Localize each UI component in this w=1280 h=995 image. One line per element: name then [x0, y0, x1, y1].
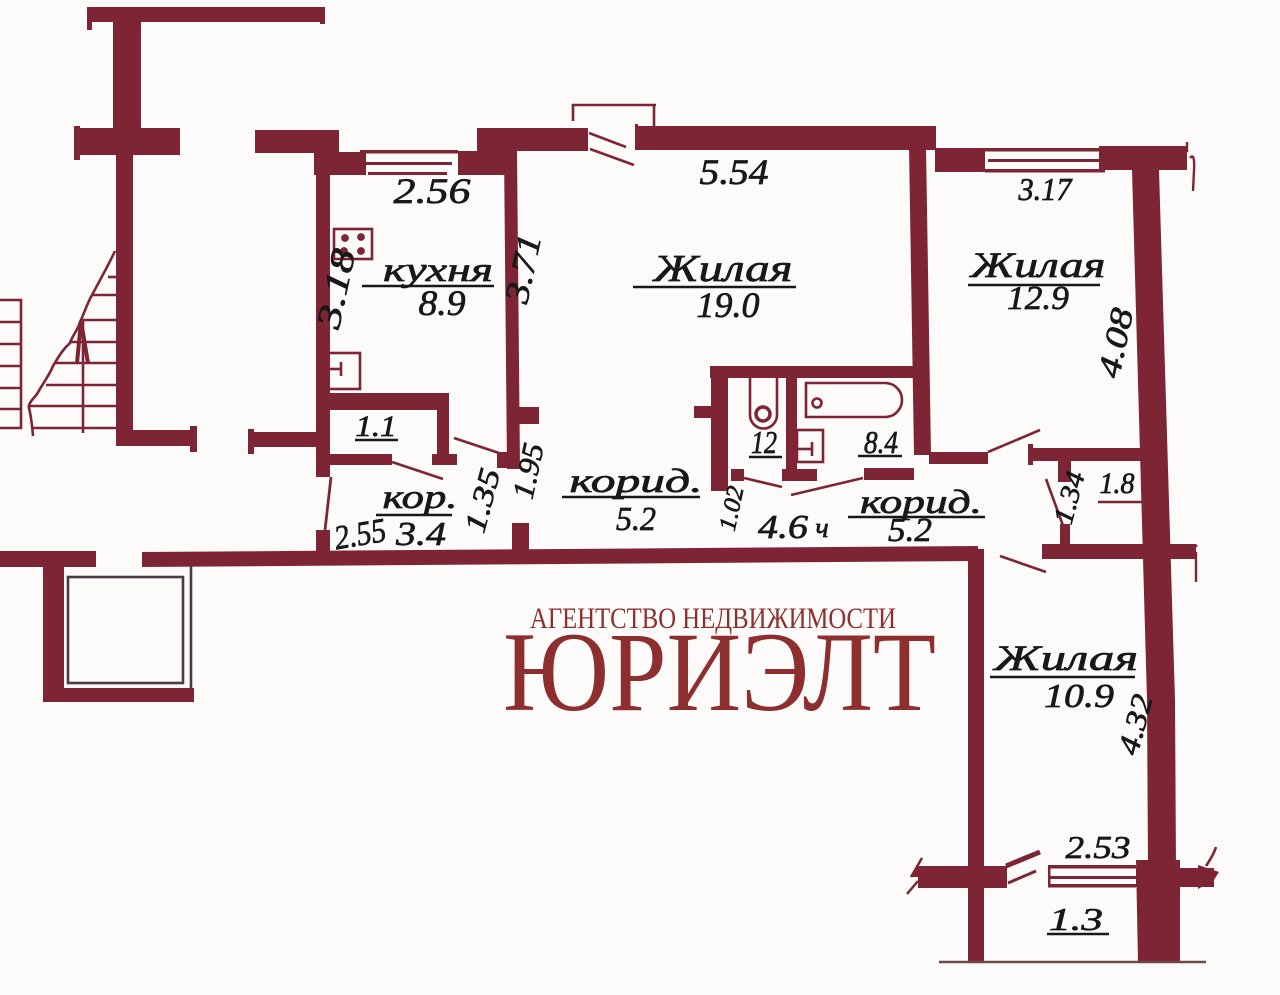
- svg-text:10.9: 10.9: [1044, 678, 1114, 715]
- svg-text:Жилая: Жилая: [652, 248, 792, 290]
- svg-text:2.53: 2.53: [1066, 829, 1131, 865]
- svg-text:ч: ч: [815, 513, 828, 544]
- svg-text:3.17: 3.17: [1018, 171, 1074, 207]
- svg-text:корид.: корид.: [570, 463, 703, 500]
- svg-text:ЮРИЭЛТ: ЮРИЭЛТ: [503, 610, 936, 735]
- svg-text:12.9: 12.9: [1007, 280, 1069, 317]
- svg-text:1.1: 1.1: [356, 410, 397, 443]
- svg-text:5.2: 5.2: [616, 501, 656, 538]
- svg-text:19.0: 19.0: [697, 285, 760, 325]
- svg-text:8.4: 8.4: [864, 424, 898, 460]
- svg-text:12: 12: [751, 424, 777, 460]
- svg-text:3.4: 3.4: [395, 516, 446, 553]
- svg-text:5.2: 5.2: [888, 512, 932, 549]
- svg-text:кор.: кор.: [383, 479, 458, 516]
- svg-text:1.8: 1.8: [1100, 467, 1135, 500]
- svg-text:Жилая: Жилая: [969, 245, 1105, 285]
- svg-text:2.56: 2.56: [394, 171, 471, 211]
- svg-text:Жилая: Жилая: [993, 638, 1138, 678]
- svg-text:5.54: 5.54: [700, 152, 769, 192]
- svg-text:4.6: 4.6: [758, 509, 808, 546]
- svg-text:8.9: 8.9: [419, 283, 466, 323]
- svg-text:1.3: 1.3: [1049, 901, 1103, 937]
